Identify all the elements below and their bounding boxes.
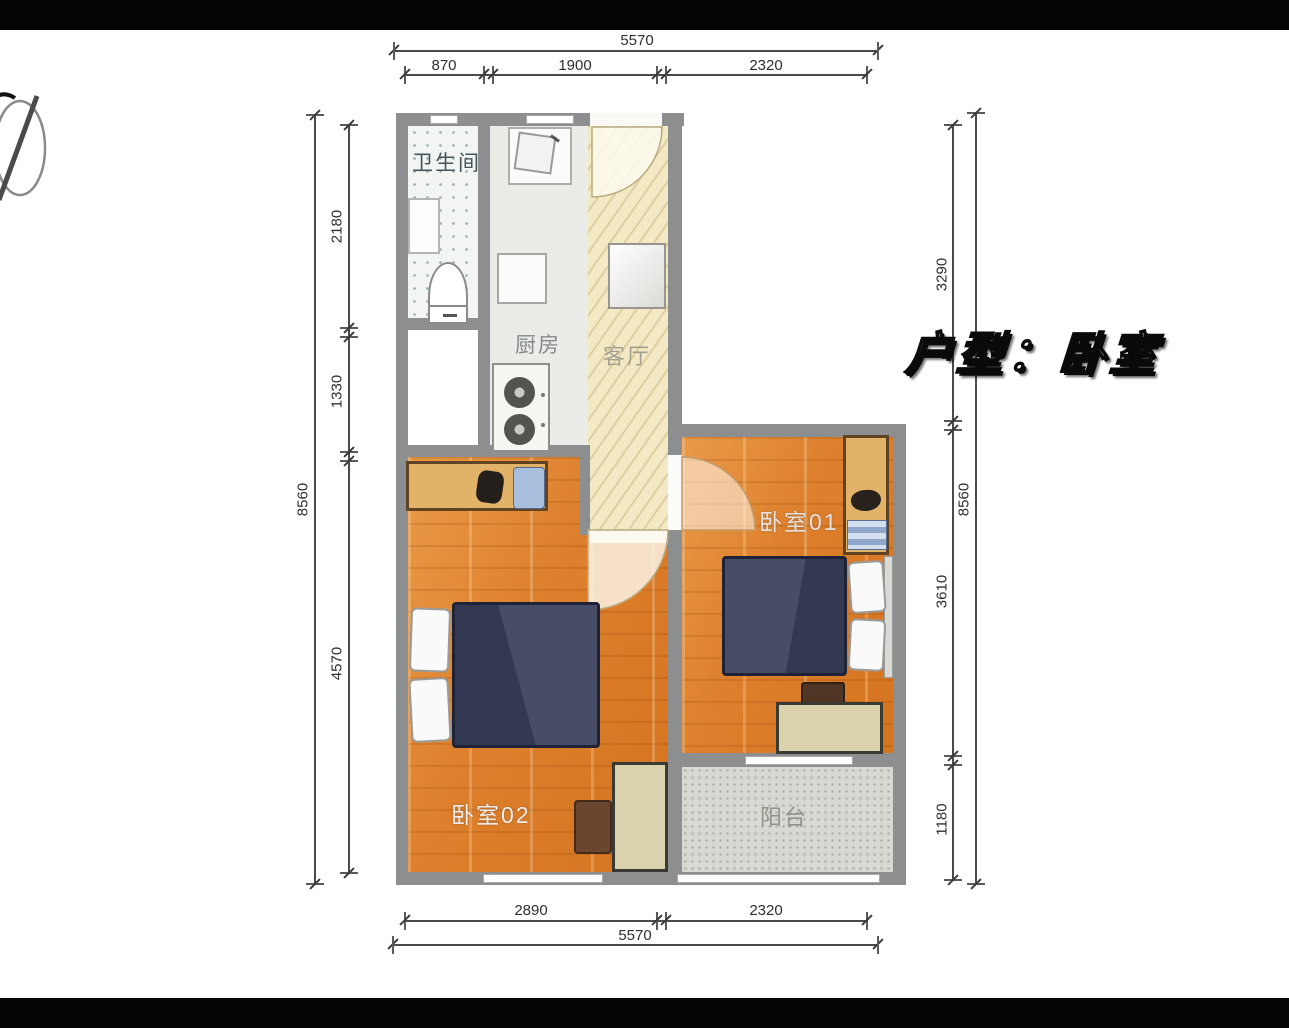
living-label: 客厅 xyxy=(603,339,651,371)
bedroom01-desk xyxy=(776,702,883,754)
dim-line-left-segments xyxy=(348,125,350,873)
bedroom01-headboard xyxy=(884,556,893,678)
bedroom01-wardrobe xyxy=(843,435,889,555)
dim-right-seg-3610: 3610 xyxy=(934,562,951,622)
kitchen-counter xyxy=(497,253,547,304)
dim-right-seg-1180: 1180 xyxy=(934,790,951,850)
page-title: 户型：卧室 xyxy=(904,318,1164,384)
dim-line-left-total xyxy=(314,115,316,884)
dim-left-seg-2180: 2180 xyxy=(329,197,346,257)
dim-line-bottom-segments xyxy=(405,920,867,922)
dim-top-total: 5570 xyxy=(607,32,667,49)
kitchen-label: 厨房 xyxy=(515,329,561,359)
dim-right-seg-3290: 3290 xyxy=(934,245,951,305)
balcony-label: 阳台 xyxy=(760,800,808,832)
stove xyxy=(492,363,550,452)
dim-line-right-total xyxy=(975,113,977,884)
fridge xyxy=(608,243,666,309)
bedroom01-pillow-2 xyxy=(848,618,887,672)
kitchen-sink xyxy=(508,127,572,185)
bedroom01-pillow-1 xyxy=(847,560,887,614)
door-swing-arcs xyxy=(0,0,1289,1028)
bedroom01-label: 卧室01 xyxy=(759,503,839,537)
dim-line-top-segments xyxy=(405,74,867,76)
dim-top-seg-1900: 1900 xyxy=(545,57,605,74)
dim-bottom-seg-2890: 2890 xyxy=(501,902,561,919)
toilet-tank xyxy=(428,305,468,324)
dim-left-seg-1330: 1330 xyxy=(329,362,346,422)
bedroom02-desk xyxy=(612,762,668,872)
bedroom02-pillow-1 xyxy=(409,607,451,672)
dim-left-total: 8560 xyxy=(295,470,312,530)
bathroom-cabinet xyxy=(408,198,440,254)
bedroom02-pillow-2 xyxy=(408,677,451,743)
bedroom02-shelf xyxy=(406,461,548,511)
bedroom02-bed xyxy=(452,602,600,748)
dim-bottom-total: 5570 xyxy=(605,927,665,944)
dim-line-top-total xyxy=(394,50,878,52)
dim-top-seg-2320: 2320 xyxy=(736,57,796,74)
bedroom02-chair xyxy=(574,800,612,854)
dim-left-seg-4570: 4570 xyxy=(329,634,346,694)
dim-line-bottom-total xyxy=(393,944,878,946)
bedroom02-label: 卧室02 xyxy=(451,796,531,830)
bathroom-label: 卫生间 xyxy=(412,147,481,177)
bedroom01-bed xyxy=(722,556,847,676)
dim-top-seg-870: 870 xyxy=(414,57,474,74)
dim-right-total: 8560 xyxy=(956,470,973,530)
floorplan-image: 卫生间 厨房 客厅 卧室01 卧室02 阳台 5570 870 1900 232… xyxy=(0,0,1289,1028)
dim-bottom-seg-2320: 2320 xyxy=(736,902,796,919)
